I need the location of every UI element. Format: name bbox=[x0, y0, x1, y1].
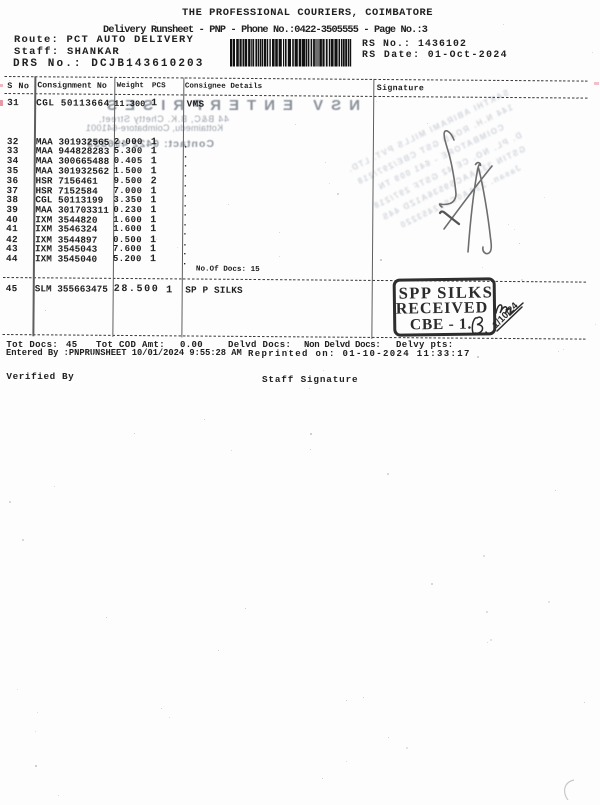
svg-text:1/10/24: 1/10/24 bbox=[490, 300, 521, 331]
